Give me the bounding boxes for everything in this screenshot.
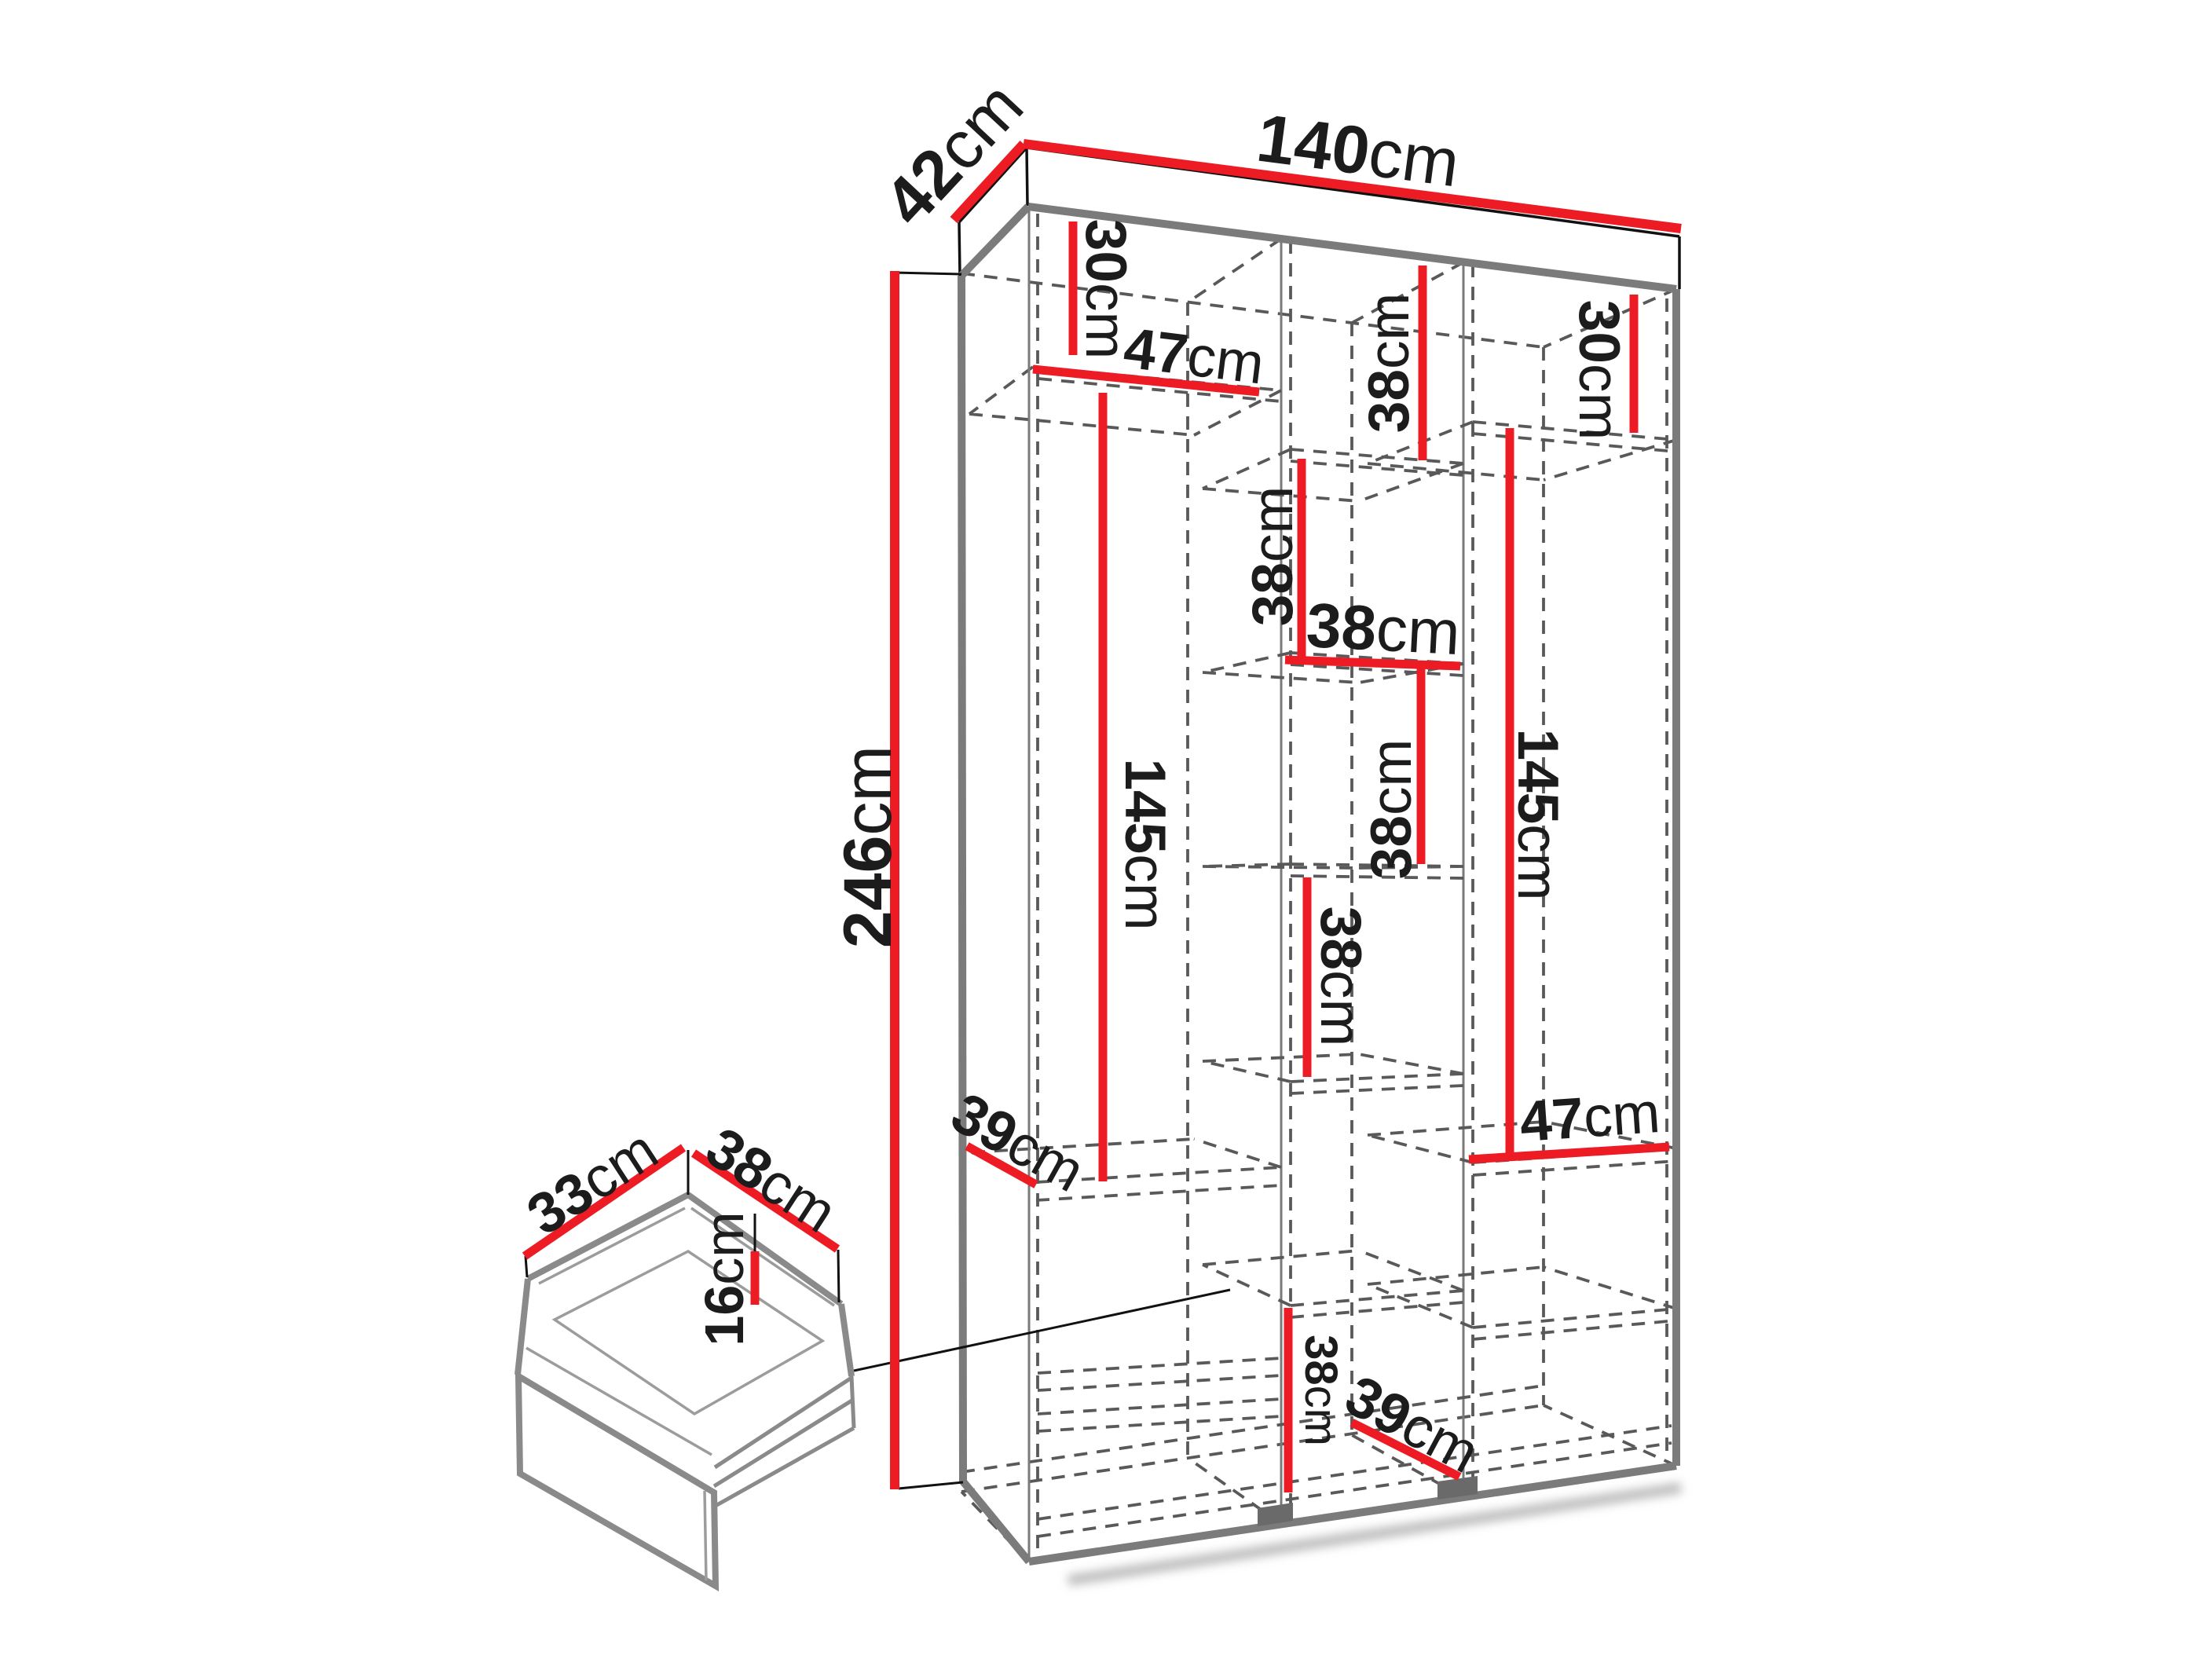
svg-text:38cm: 38cm [1360, 739, 1423, 880]
svg-text:246cm: 246cm [830, 745, 906, 948]
svg-text:47cm: 47cm [1518, 1080, 1662, 1153]
svg-text:145cm: 145cm [1507, 728, 1570, 900]
svg-text:30cm: 30cm [1568, 300, 1632, 441]
svg-text:38cm: 38cm [1357, 293, 1421, 434]
svg-text:145cm: 145cm [1114, 758, 1177, 930]
svg-text:38cm: 38cm [1296, 1335, 1347, 1446]
svg-text:38cm: 38cm [1305, 589, 1462, 667]
svg-text:38cm: 38cm [1309, 906, 1373, 1047]
svg-text:38cm: 38cm [1241, 486, 1305, 627]
svg-text:16cm: 16cm [694, 1211, 755, 1346]
